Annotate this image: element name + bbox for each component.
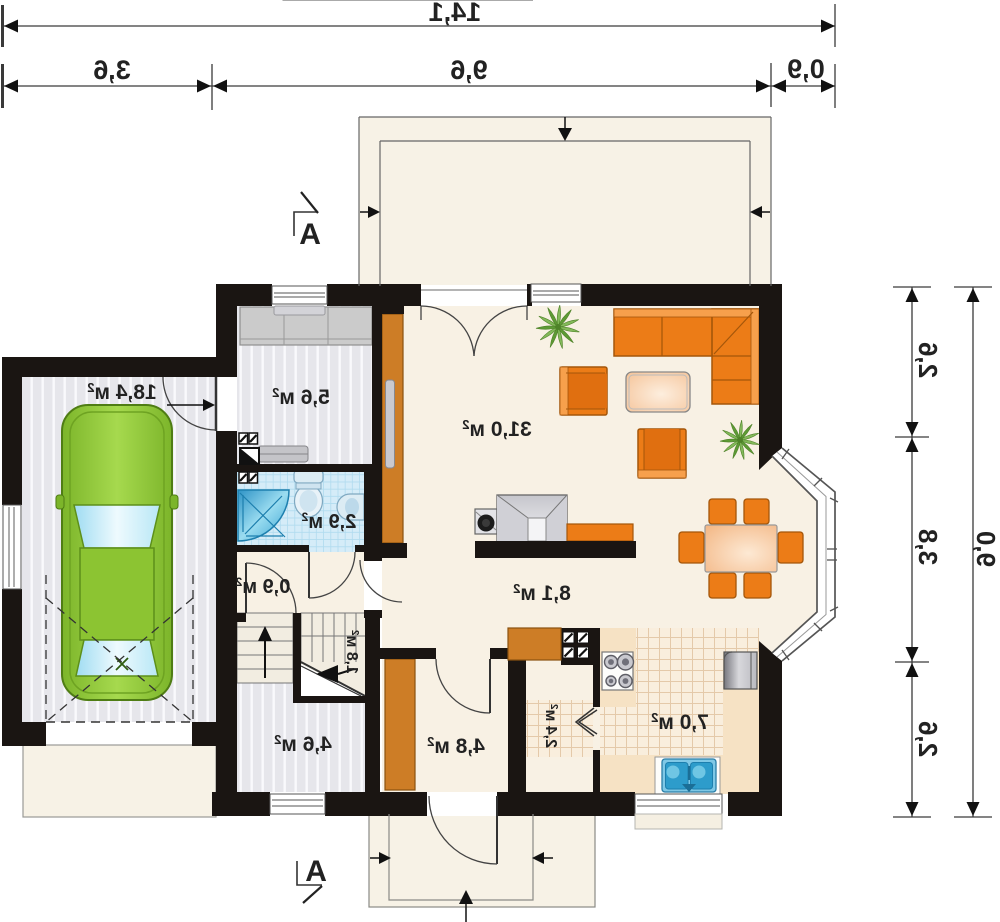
svg-text:7,0 м2: 7,0 м2 — [651, 710, 709, 734]
svg-text:0,9 м2: 0,9 м2 — [235, 575, 290, 598]
svg-text:14,1: 14,1 — [429, 0, 482, 27]
svg-text:4,8 м2: 4,8 м2 — [427, 734, 485, 758]
svg-text:9,6: 9,6 — [450, 55, 488, 85]
svg-text:3,6: 3,6 — [93, 55, 131, 85]
svg-text:1,8 м2: 1,8 м2 — [343, 630, 360, 675]
svg-text:2,6: 2,6 — [913, 721, 943, 757]
svg-text:A: A — [305, 855, 327, 888]
svg-text:31,0 м2: 31,0 м2 — [462, 417, 531, 441]
svg-text:4,6 м2: 4,6 м2 — [274, 732, 332, 756]
svg-text:2,6: 2,6 — [913, 342, 943, 378]
svg-text:2,9 м2: 2,9 м2 — [301, 510, 356, 533]
svg-text:0,9: 0,9 — [787, 54, 825, 84]
svg-text:9,0: 9,0 — [971, 531, 1000, 567]
svg-text:18,4 м2: 18,4 м2 — [87, 380, 156, 404]
svg-text:2,4 м2: 2,4 м2 — [542, 704, 559, 749]
svg-text:5,6 м2: 5,6 м2 — [272, 385, 330, 409]
svg-text:A: A — [299, 218, 321, 251]
svg-text:3,8: 3,8 — [913, 529, 943, 565]
svg-text:8,1 м2: 8,1 м2 — [513, 581, 571, 605]
